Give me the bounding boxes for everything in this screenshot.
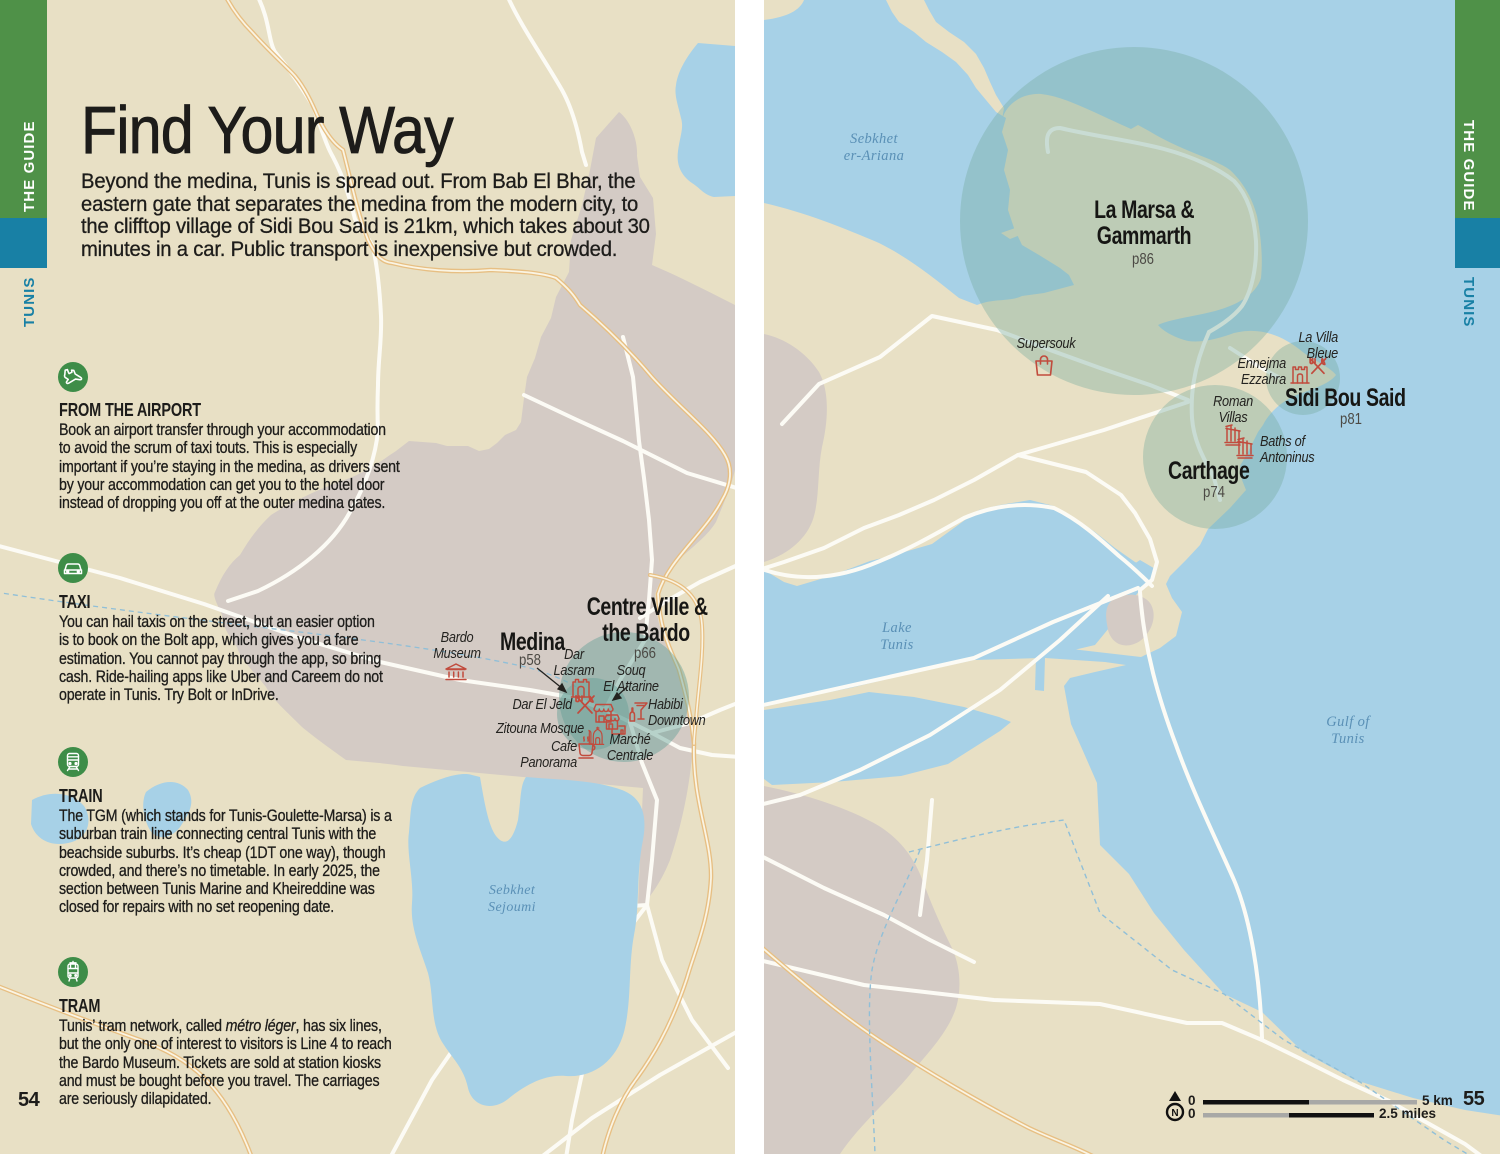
svg-text:N: N	[1171, 1108, 1178, 1119]
